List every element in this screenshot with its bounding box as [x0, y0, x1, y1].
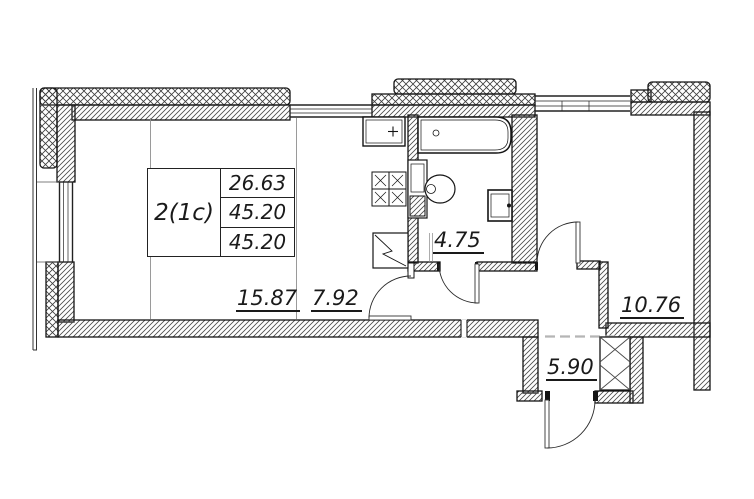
- door-arc: [547, 400, 595, 448]
- wall-segment: [630, 337, 643, 403]
- door-arc: [369, 276, 411, 318]
- wall-segment: [599, 262, 608, 328]
- room-label-kitchen: 7.92: [311, 287, 362, 312]
- balcony-slab-line: [33, 88, 37, 350]
- apartment-info-table: 2(1c) 26.63 45.20 45.20: [147, 168, 295, 257]
- wall-segment: [512, 115, 537, 263]
- wall-segment: [477, 262, 537, 271]
- area-value: 45.20: [221, 227, 294, 256]
- shaft-icon: [600, 337, 630, 390]
- window-top-bedroom: [535, 96, 630, 111]
- wall-segment: [46, 262, 58, 337]
- duct-icon: [408, 160, 427, 218]
- stove-icon: [372, 172, 406, 206]
- door-leaf: [475, 264, 479, 303]
- room-label-hall: 5.90: [546, 356, 597, 381]
- room-label-living: 15.87: [236, 287, 300, 312]
- wall-segment: [577, 261, 600, 269]
- wash-basin-icon: [488, 190, 512, 221]
- door-leaf: [576, 222, 580, 263]
- window-left-living: [37, 182, 73, 262]
- wall-segment: [595, 391, 633, 403]
- door-arc: [537, 222, 578, 263]
- door-entry: [545, 400, 595, 448]
- kitchen-sink-icon: [363, 117, 405, 146]
- wall-segment: [58, 262, 74, 322]
- door-leaf: [369, 316, 411, 320]
- room-label-bathroom: 4.75: [433, 229, 484, 254]
- apartment-type: 2(1c): [148, 169, 221, 256]
- wall-segment: [72, 105, 290, 120]
- window-top-living: [290, 105, 372, 117]
- wall-segment: [606, 323, 710, 337]
- wall-joint: [461, 319, 467, 337]
- wall-segment: [694, 112, 710, 390]
- wall-segment: [57, 105, 75, 182]
- area-value: 45.20: [221, 197, 294, 226]
- wall-segment: [523, 337, 538, 393]
- wall-segment: [40, 88, 57, 168]
- floor-plan: 2(1c) 26.63 45.20 45.20 15.87 7.92 4.75 …: [0, 0, 754, 499]
- wall-segment: [372, 105, 535, 117]
- wall-segment: [372, 94, 535, 105]
- door-arc: [439, 264, 478, 303]
- wall-segment: [394, 79, 516, 94]
- toilet-icon: [425, 175, 455, 203]
- room-label-bedroom: 10.76: [620, 294, 684, 319]
- door-kitchen: [369, 276, 411, 320]
- door-bathroom: [439, 264, 479, 303]
- area-value: 26.63: [221, 169, 294, 197]
- door-leaf: [545, 400, 549, 448]
- vent-duct-icon: [373, 233, 408, 268]
- wall-segment: [648, 82, 710, 102]
- door-bedroom: [537, 222, 580, 263]
- wall-segment: [40, 88, 290, 105]
- floor-plan-drawing: [0, 0, 754, 499]
- apartment-areas: 26.63 45.20 45.20: [221, 169, 294, 256]
- wall-segment: [517, 391, 542, 401]
- bathtub-icon: [418, 117, 511, 153]
